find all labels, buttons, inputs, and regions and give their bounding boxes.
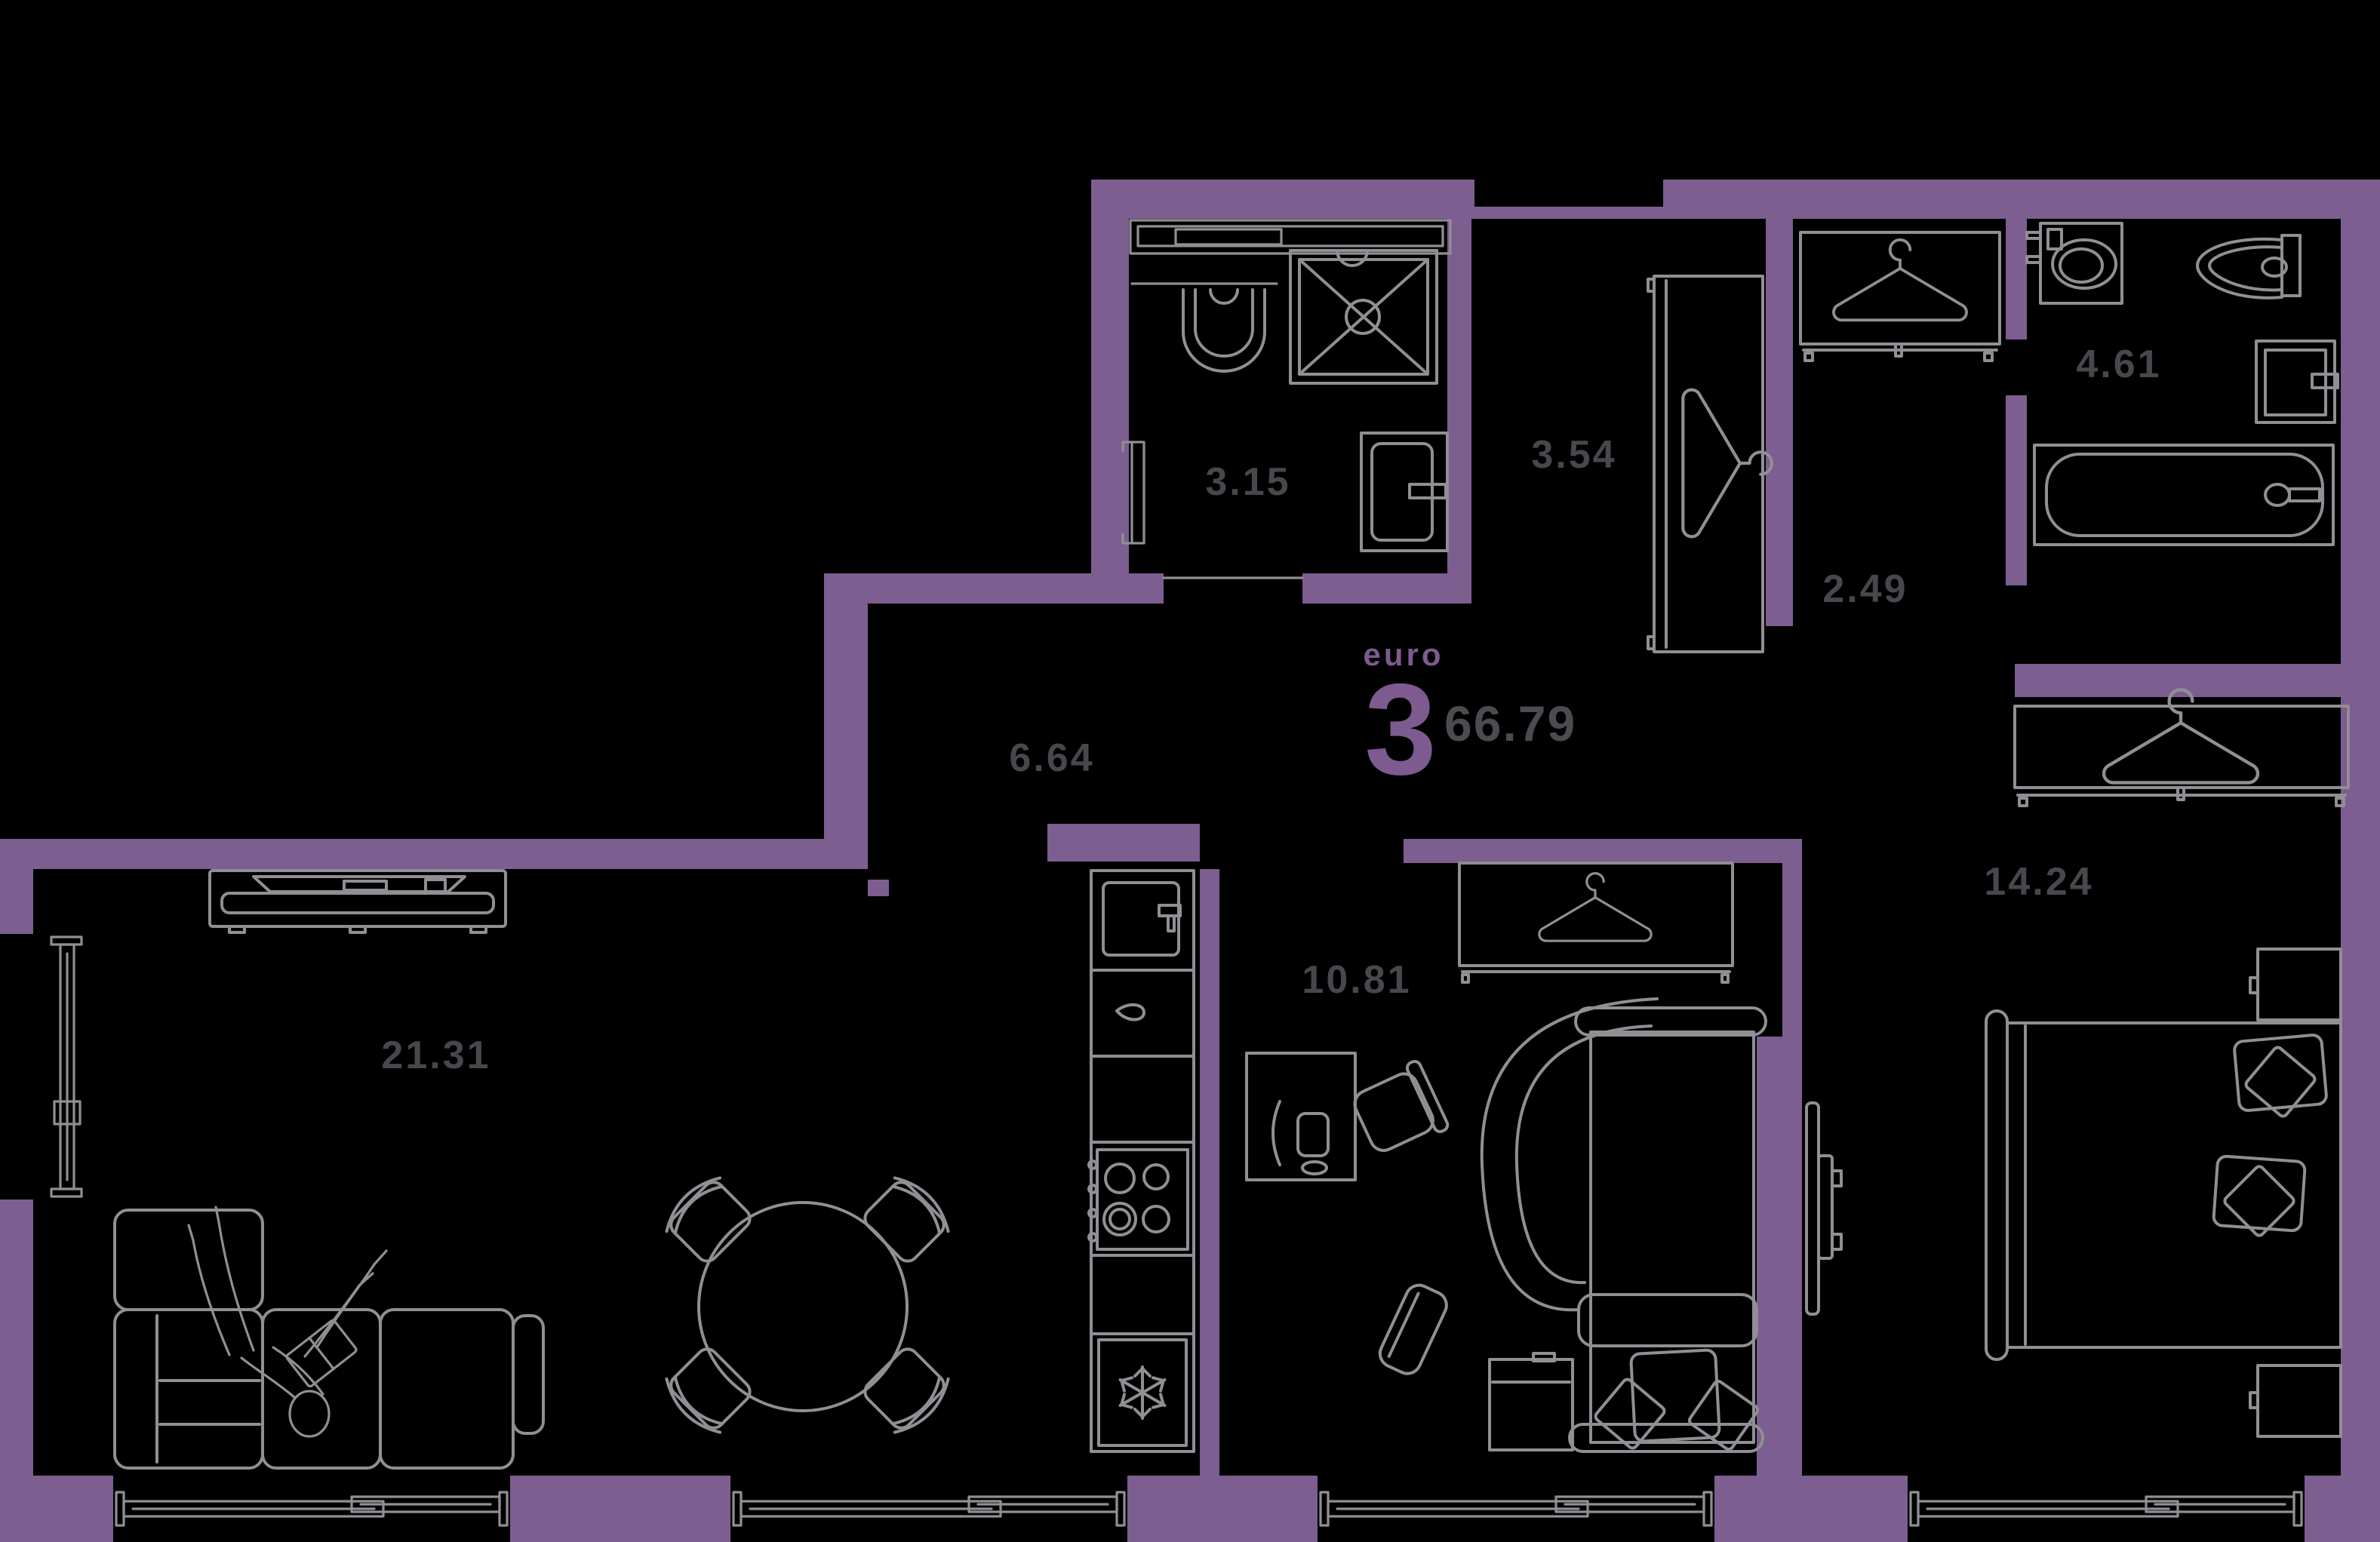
room-bathroom-1	[1123, 220, 1450, 578]
area-label-living: 21.31	[381, 1034, 490, 1077]
washing-machine-icon	[2027, 223, 2122, 303]
wall-bottom-2	[510, 1476, 730, 1542]
window	[1911, 1492, 2302, 1525]
dining-chair	[857, 1170, 956, 1269]
wall-living-kids	[1200, 869, 1219, 1476]
hanger-icon	[2104, 690, 2258, 782]
room-bathroom-2	[2027, 223, 2338, 545]
wall-bottom-5	[2305, 1476, 2380, 1542]
wall-top-right	[1663, 180, 2341, 219]
area-label-bedroom: 14.24	[1984, 860, 2093, 904]
wall-right	[2341, 180, 2380, 1542]
wall-bottom-3	[1127, 1476, 1318, 1542]
wall-hall-horizontal	[824, 573, 1164, 604]
room-living	[51, 871, 956, 1468]
nightstand	[1490, 1353, 1573, 1450]
area-label-bathroom-1: 3.15	[1205, 460, 1290, 504]
floor-plan: 3.15 3.54 2.49 4.61 6.64 21.31 10.81 14.…	[0, 0, 2380, 1542]
area-label-hallway: 6.64	[1009, 736, 1094, 780]
room-corridor	[1800, 232, 2000, 361]
dining-set	[659, 1170, 956, 1440]
room-kids	[1247, 863, 1766, 1451]
kitchen	[1089, 871, 1194, 1451]
sink-icon	[2256, 341, 2338, 422]
wall-354-249	[1766, 219, 1793, 626]
kitchen-sink-icon	[1103, 883, 1180, 955]
dining-chair	[857, 1341, 956, 1440]
wardrobe	[1459, 863, 1733, 982]
wall-bath1-bottom	[1302, 573, 1471, 604]
hanger-icon	[1834, 240, 1966, 320]
area-label-bathroom-2: 4.61	[2076, 342, 2161, 386]
desk	[1247, 1053, 1355, 1180]
area-label-corridor: 2.49	[1822, 567, 1908, 611]
fridge-icon	[1099, 1340, 1186, 1445]
window	[1321, 1492, 1711, 1525]
wall-left-upper	[0, 839, 33, 934]
nightstand-top	[2250, 949, 2341, 1020]
wall-living-top	[0, 839, 868, 869]
plan-total-area: 66.79	[1444, 696, 1576, 751]
toilet-icon	[1183, 290, 1265, 371]
area-label-wardrobe-hall: 3.54	[1531, 433, 1616, 477]
sofa	[115, 1210, 543, 1468]
shower-icon	[1290, 250, 1437, 383]
wall-kids-top	[1404, 839, 1785, 863]
wall-bath1-right	[1447, 219, 1471, 604]
dining-chair	[659, 1170, 758, 1269]
entry-threshold	[1474, 207, 1663, 219]
room-bedroom	[1807, 690, 2348, 1436]
wall-249-461-lower	[2006, 395, 2027, 585]
tv-console	[210, 871, 506, 932]
faucet-drop-icon	[1117, 1005, 1144, 1020]
wall-kitchen-top	[1047, 824, 1200, 862]
wall-tv-icon	[1807, 1103, 1841, 1314]
wall-hall-vertical	[824, 602, 868, 869]
hanger-icon	[1683, 390, 1772, 537]
window-left	[51, 937, 81, 1196]
wall-bedroom-top	[2015, 664, 2380, 697]
hanger-icon	[1539, 874, 1651, 941]
wall-bath1-left	[1091, 219, 1129, 575]
washbasin-icon	[1361, 433, 1447, 551]
wall-left-lower	[0, 1200, 33, 1476]
room-wardrobe-hall	[1648, 276, 1772, 652]
stove-icon	[1089, 1150, 1188, 1249]
window	[116, 1492, 507, 1525]
person-on-sofa	[189, 1207, 386, 1436]
wall-kids-bedroom-pier	[1757, 1037, 1802, 1476]
labels: 3.15 3.54 2.49 4.61 6.64 21.31 10.81 14.…	[381, 342, 2161, 1077]
stool-chair	[1376, 1281, 1451, 1378]
plan-rooms-count: 3	[1364, 657, 1437, 802]
wall-top-left	[1091, 180, 1474, 219]
toilet-icon	[2197, 235, 2300, 298]
wardrobe-wide	[1800, 232, 2000, 361]
desk-chair	[1348, 1059, 1450, 1160]
wall-hall-nub	[868, 880, 889, 896]
area-label-kids: 10.81	[1302, 958, 1411, 1002]
wall-249-461-upper	[2006, 219, 2027, 339]
bathtub-icon	[2034, 445, 2333, 545]
nightstand-bottom	[2250, 1365, 2341, 1436]
double-bed	[1986, 1011, 2341, 1359]
kitchen-counter	[1091, 871, 1194, 1451]
window	[733, 1492, 1124, 1525]
wall-bottom-1	[0, 1476, 113, 1542]
wall-bottom-4	[1714, 1476, 1908, 1542]
plan-title: euro 3 66.79	[1363, 637, 1576, 802]
